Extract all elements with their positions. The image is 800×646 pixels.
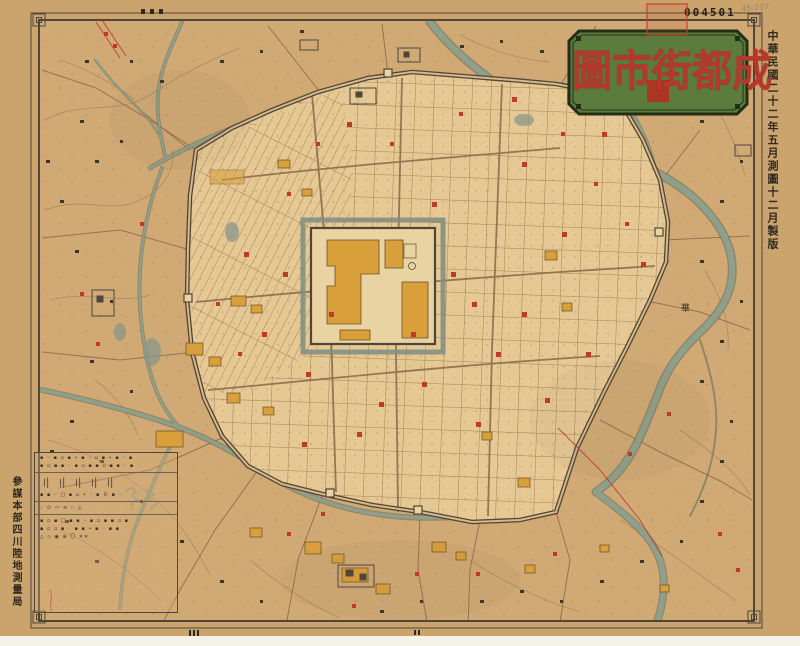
publisher-text: 參謀本部四川陸地測量局: [8, 476, 23, 616]
serial-number-stamp: 004501: [684, 6, 736, 19]
title-char: 都: [692, 50, 732, 93]
title-char: 圖: [572, 50, 612, 93]
imperial-city-compound: [303, 220, 443, 352]
red-seal-stamp: [646, 3, 688, 36]
scan-edge: [0, 636, 800, 646]
legend-divider: [35, 501, 177, 502]
map-title: 圖 市 街 都 成: [572, 40, 744, 104]
county-label: 華: [681, 301, 690, 314]
map-sheet: 中華民國二十二年五月測圖十二月製版 參謀本部四川陸地測量局 004501 45-…: [0, 0, 800, 646]
legend-divider: [35, 472, 177, 473]
legend-row: ▪ ▫ ▪ □ ▪ ▪ ◦ ▪ ▫ ▪ ▪ ▫ ▪: [35, 516, 177, 524]
title-char: 成: [732, 50, 772, 93]
legend-row: △ ⬦ ◉ ⊕ 〇 ✕✕: [35, 532, 177, 540]
title-char: 街: [652, 50, 692, 93]
legend-row: ▪ ▪ ◦ □ ▪ ▫ ∙ ◦ ▪ 〥 ▪ ◦: [35, 490, 177, 498]
legend-box: ▪ ◦ ▪ ▫ ▪ ∙ ▪ ◦ ▫ ▪ ∙ ▪ ◦ ▪ ▪ ▫ ▪ ▪ ◦ ▪ …: [34, 452, 178, 613]
legend-row: ∴ ⊙ 〰 ≋ ∷ ◬: [35, 503, 177, 511]
legend-row: ▪ ◦ ▪ ▫ ▪ ∙ ▪ ◦ ▫ ▪ ∙ ▪ ◦ ▪: [35, 453, 177, 461]
title-char: 市: [612, 50, 652, 93]
legend-divider: [35, 514, 177, 515]
legend-row: ▪ ▫ ▫ ▪ ◦ ▪ ▪ ∙ ▪ ◦ ▪ ▪: [35, 524, 177, 532]
legend-row-bars: 〢〢〢〢〢: [35, 474, 177, 490]
legend-row: ▪ ▫ ▪ ▪ ◦ ▪ ▫ ▪ ▪ ▫ ▪ ▪ ◦ ▪: [35, 461, 177, 469]
